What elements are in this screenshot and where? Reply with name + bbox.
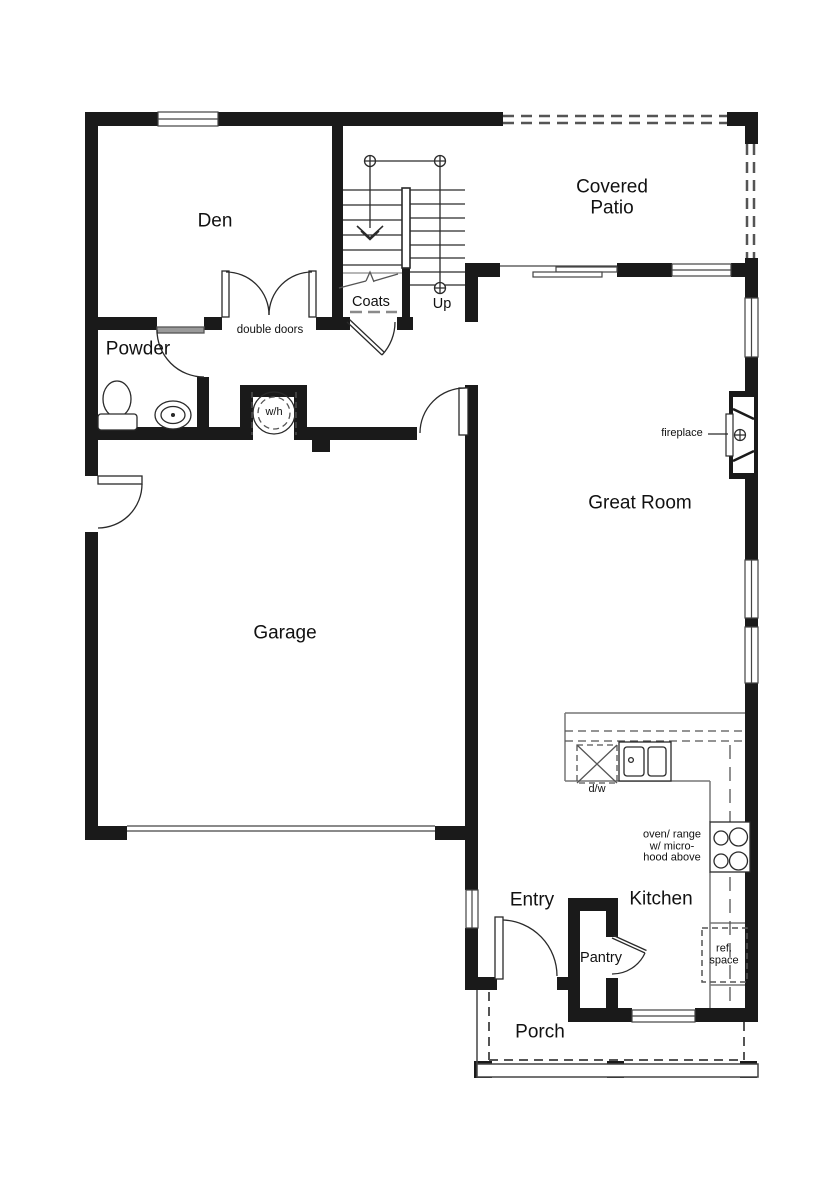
stair-rail	[402, 188, 410, 268]
coats-rod	[339, 272, 398, 288]
patio-wall-window	[672, 264, 731, 276]
floor-plan: Den Covered Patio Powder Coats Up double…	[0, 0, 840, 1193]
stairs-up-label: Up	[433, 296, 452, 312]
sliding-glass-door	[500, 266, 617, 277]
room-label-powder: Powder	[106, 338, 170, 359]
toilet	[98, 381, 137, 430]
great-room-window-3	[745, 627, 758, 683]
room-label-garage: Garage	[253, 622, 316, 643]
sink	[155, 401, 191, 429]
floor-plan-drawing	[0, 0, 840, 1193]
walls	[85, 112, 758, 1078]
coats-closet-door	[347, 320, 395, 356]
room-label-porch: Porch	[515, 1021, 565, 1042]
doors	[98, 271, 647, 979]
great-room-window-2	[745, 560, 758, 618]
room-label-entry: Entry	[510, 889, 554, 910]
stair-treads-left	[343, 190, 402, 265]
garage-to-hall-door	[420, 388, 468, 435]
stair-treads-right	[410, 190, 465, 285]
den-double-doors	[222, 271, 316, 317]
double-doors-label: double doors	[237, 324, 304, 336]
oven-range-label: oven/ range w/ micro- hood above	[643, 830, 701, 865]
entry-door	[495, 917, 557, 979]
dishwasher-label: d/w	[588, 784, 605, 796]
garage-service-door	[98, 476, 142, 528]
fireplace	[708, 391, 758, 479]
room-label-coats: Coats	[352, 294, 390, 310]
windows	[127, 112, 758, 1022]
fireplace-label: fireplace	[661, 428, 703, 440]
room-label-kitchen: Kitchen	[629, 888, 692, 909]
room-label-covered-patio: Covered Patio	[576, 177, 648, 220]
room-label-great-room: Great Room	[588, 492, 691, 513]
porch-step-edge	[477, 1064, 758, 1077]
down-arrow	[357, 226, 383, 240]
powder-fixtures	[98, 381, 191, 430]
water-heater-label: w/h	[265, 407, 282, 419]
entry-sidelite-window	[466, 890, 478, 928]
great-room-window-1	[745, 298, 758, 357]
kitchen-window	[632, 1010, 695, 1022]
room-label-den: Den	[198, 210, 233, 231]
garage-door	[127, 826, 435, 831]
ref-space-label: ref. space	[709, 943, 738, 966]
room-label-pantry: Pantry	[580, 950, 622, 966]
den-window	[158, 112, 218, 126]
dishwasher	[577, 745, 617, 783]
range	[710, 822, 750, 872]
kitchen-sink	[619, 742, 671, 781]
